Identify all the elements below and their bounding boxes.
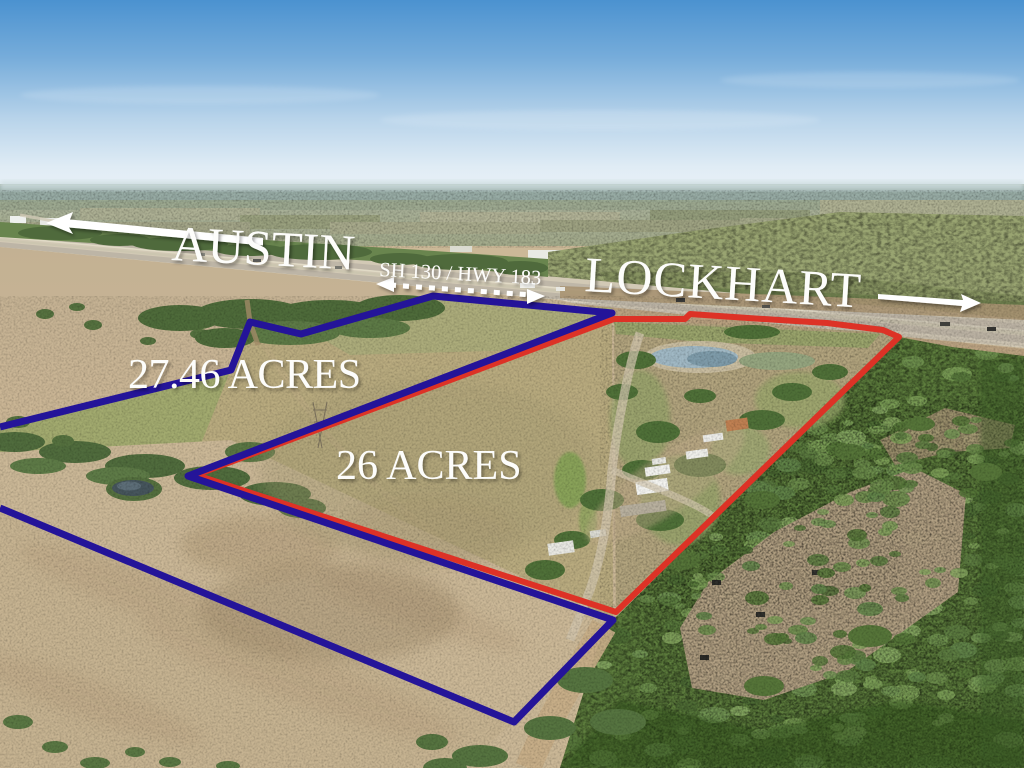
svg-text:AUSTIN: AUSTIN xyxy=(170,215,356,281)
svg-text:27.46 ACRES: 27.46 ACRES xyxy=(128,352,361,398)
svg-text:26 ACRES: 26 ACRES xyxy=(336,443,522,489)
